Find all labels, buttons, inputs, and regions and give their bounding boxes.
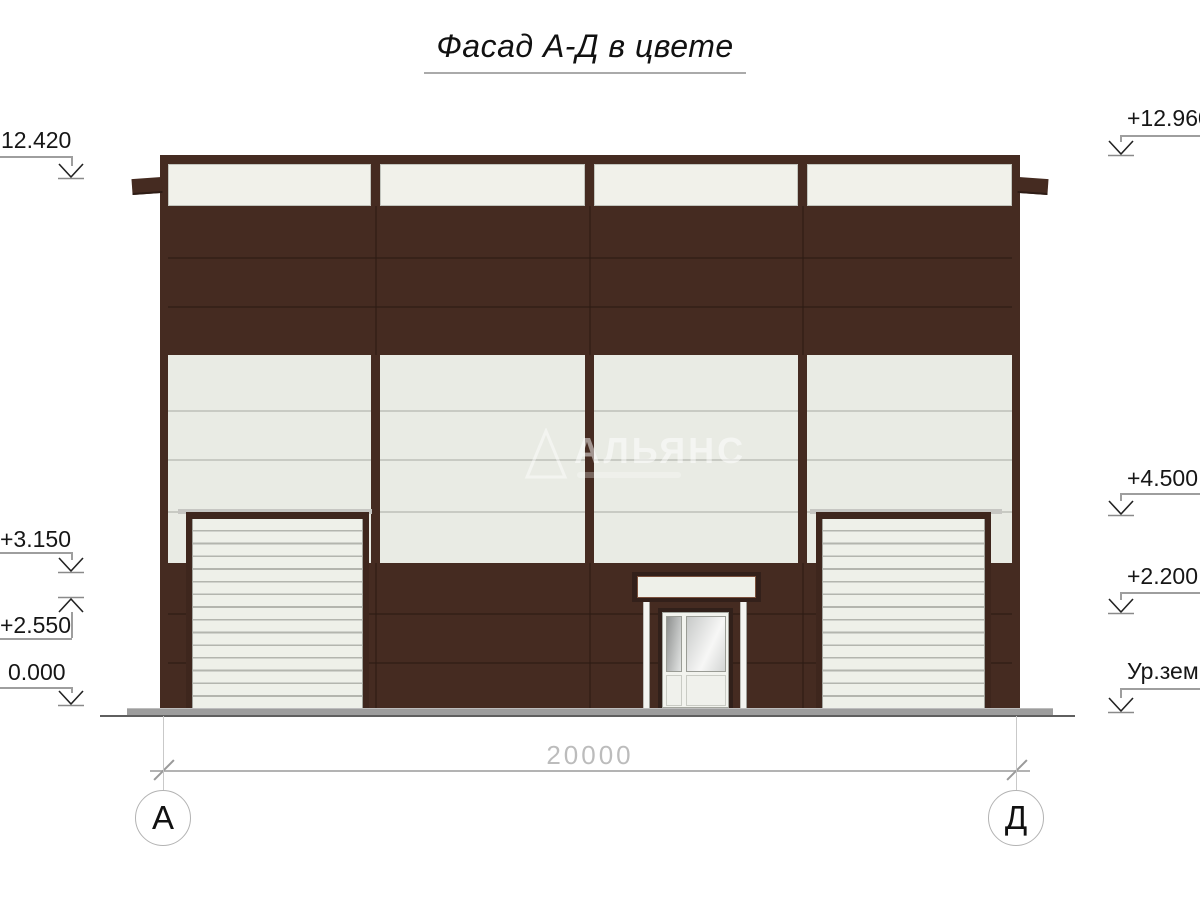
watermark-subtext-bar [577,472,681,478]
watermark-text: АЛЬЯНС [574,430,746,472]
panel-seam-vertical [802,563,804,708]
elevation-mark-icon [1108,500,1134,517]
roller-gate-left [192,519,363,710]
elevation-mark-icon [1108,140,1134,157]
elevation-mark-icon [58,690,84,707]
door-leaf-panel [686,675,726,706]
axis-line-a [163,716,164,790]
strip-window-bay1 [168,164,371,206]
drawing-title: Фасад А-Д в цвете [424,28,745,74]
panel-seam-vertical [802,206,804,355]
elevation-label: +2.200 [1127,564,1198,588]
elevation-mark-icon [58,557,84,574]
door-leaf-glass [686,616,726,672]
leader-line [0,156,72,158]
elevation-label: 0.000 [8,660,66,684]
facade-elevation-drawing: Фасад А-Д в цвете АЛЬЯНС [0,0,1200,900]
leader-line [1121,135,1200,137]
strip-window-bay2 [380,164,585,206]
leader-line [1121,688,1200,690]
drawing-title-wrap: Фасад А-Д в цвете [300,28,870,74]
elevation-mark-up-icon [58,596,84,613]
gutter-bracket-right [1017,177,1048,195]
dimension-value: 20000 [490,740,690,771]
gutter-bracket-left [131,177,162,195]
panel-seam-vertical [589,563,591,708]
leader-line [1121,592,1200,594]
axis-line-d [1016,716,1017,790]
door-sidelight-glass [666,616,682,672]
elevation-mark-icon [1108,697,1134,714]
elevation-mark-icon [1108,598,1134,615]
leader-line [71,612,73,638]
canopy-post-right [740,602,747,710]
axis-bubble-a: А [135,790,191,846]
leader-line [0,687,72,689]
canopy-post-left [643,602,650,710]
panel-seam-vertical [375,563,377,708]
elevation-label: +3.150 [0,527,71,551]
leader-line [0,552,72,554]
panel-seam-vertical [375,206,377,355]
door-sidelight-panel [666,675,682,706]
axis-label-d: Д [1005,799,1027,837]
strip-window-bay4 [807,164,1012,206]
entrance-canopy [637,576,756,598]
elevation-label: +2.550 [0,613,71,637]
panel-seam-vertical [589,206,591,355]
leader-line [0,638,72,640]
axis-bubble-d: Д [988,790,1044,846]
elevation-label: 12.420 [1,128,71,152]
watermark-logo-icon [524,428,568,480]
facade-column [371,355,380,563]
elevation-mark-icon [58,163,84,180]
roller-gate-right [822,519,985,710]
elevation-label: +12.960 [1127,106,1200,130]
elevation-label: Ур.зем. [1127,659,1200,683]
strip-window-bay3 [594,164,798,206]
leader-line [1121,493,1200,495]
facade-column [798,355,807,563]
axis-label-a: А [152,799,174,837]
elevation-label: +4.500 [1127,466,1198,490]
ground-line [100,715,1075,717]
